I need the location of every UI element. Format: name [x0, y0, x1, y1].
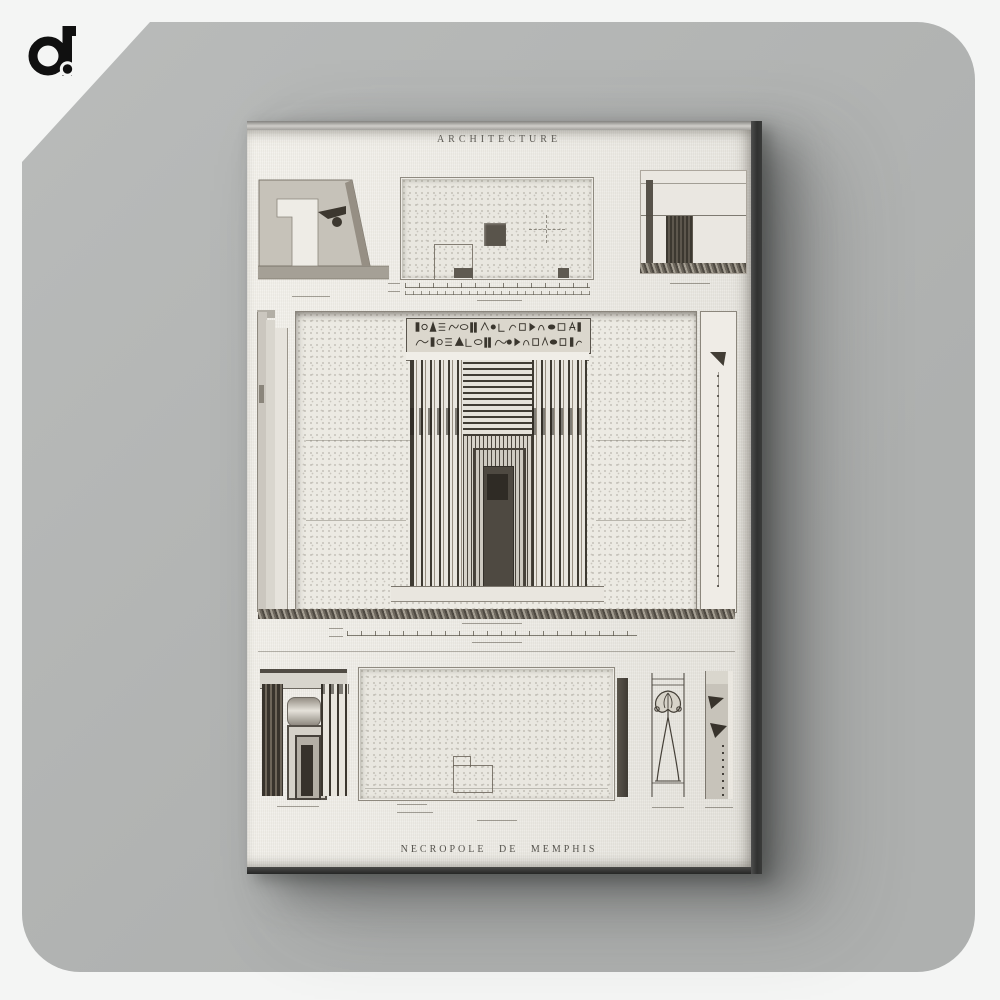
masonry-joint — [596, 440, 686, 441]
section-ticks — [722, 741, 724, 796]
section-notch — [708, 696, 724, 709]
plate-title: ARCHITECTURE — [247, 134, 751, 145]
detail-drum-roll — [287, 697, 321, 727]
detail-pier — [262, 684, 283, 796]
fig-lotus-ornament — [648, 671, 688, 799]
doorway-opening — [666, 216, 693, 263]
figure-caption-micro — [477, 300, 522, 301]
canvas-bottom-edge — [247, 867, 751, 874]
detail-door-core — [301, 745, 313, 796]
measure-ticks — [717, 372, 719, 587]
plan-crosshair-v — [546, 215, 547, 243]
fig-jamb-bar — [617, 678, 628, 797]
plan-notch — [454, 268, 473, 278]
fig-plan-bottom — [358, 667, 615, 801]
masonry-joint — [306, 440, 411, 441]
figure-caption-micro — [397, 812, 433, 813]
a-dot-logo-glyph — [28, 26, 76, 78]
plate-caption: NECROPOLE DE MEMPHIS — [247, 844, 751, 855]
door-opening — [487, 474, 508, 500]
detail-pilasters — [321, 684, 349, 796]
canvas-top-edge — [247, 121, 751, 130]
cornice-line — [641, 183, 746, 184]
lintel-line — [641, 215, 746, 216]
canvas-print[interactable]: ARCHITECTURE — [247, 121, 762, 874]
plan-crosshair-h — [529, 229, 565, 230]
pilaster-cluster-right — [532, 360, 587, 586]
scale-bar-main — [347, 631, 637, 636]
fig-measure-strip-right — [700, 311, 737, 613]
fig-mastaba-section — [258, 172, 392, 294]
papyrus-capitals-left — [410, 408, 463, 435]
ground-hatch — [640, 263, 746, 273]
figure-caption-micro — [472, 642, 522, 643]
brand-logo-a-icon[interactable] — [28, 26, 76, 78]
figure-caption-micro — [652, 807, 684, 808]
detail-capitals — [321, 684, 349, 694]
profile-step — [266, 320, 275, 612]
fig-doorway-elevation — [640, 170, 747, 274]
figure-caption-micro — [329, 628, 343, 629]
portal-recess — [463, 436, 532, 586]
mockup-stage: ARCHITECTURE — [0, 0, 1000, 1000]
strip-right-slit — [728, 671, 733, 799]
figure-caption-micro — [397, 804, 427, 805]
figure-caption-micro — [670, 283, 710, 284]
fig-wall-profile-left — [257, 310, 292, 616]
papyrus-capitals-right — [532, 408, 585, 435]
figure-caption-micro — [388, 291, 400, 292]
door-jamb-dark — [646, 180, 653, 265]
profile-notch-triangle — [710, 352, 726, 366]
profile-notch — [259, 385, 264, 403]
figure-caption-micro — [705, 807, 733, 808]
figure-caption-micro — [477, 820, 517, 821]
plan-notch — [558, 268, 569, 278]
fig-portal-detail — [258, 667, 350, 799]
figure-caption-micro — [329, 636, 343, 637]
pilaster-cluster-left — [410, 360, 465, 586]
fig-facade-main — [295, 311, 697, 613]
canvas-face: ARCHITECTURE — [247, 130, 751, 867]
portal-slat-panel — [463, 360, 532, 436]
figure-caption-micro — [388, 283, 400, 284]
figure-caption-micro — [462, 623, 522, 624]
scale-bar — [405, 291, 590, 295]
plan-inner-line — [365, 788, 608, 789]
plate-rule — [258, 651, 735, 652]
masonry-joint — [596, 520, 686, 521]
figure-caption-micro — [277, 806, 319, 807]
plan-outline-step — [453, 756, 471, 767]
portal — [406, 318, 589, 605]
fig-plan-top — [400, 177, 594, 280]
figure-caption-micro — [292, 296, 330, 297]
profile-step — [275, 328, 288, 612]
scale-bar — [405, 283, 590, 288]
plan-shaft — [484, 223, 506, 246]
fig-jamb-section — [705, 671, 733, 799]
section-notch — [710, 723, 727, 738]
masonry-joint — [306, 520, 406, 521]
portal-base-platform — [391, 586, 604, 602]
canvas-right-edge — [751, 121, 762, 874]
ground-hatch-main — [258, 609, 735, 619]
hieroglyph-frieze — [406, 318, 591, 354]
